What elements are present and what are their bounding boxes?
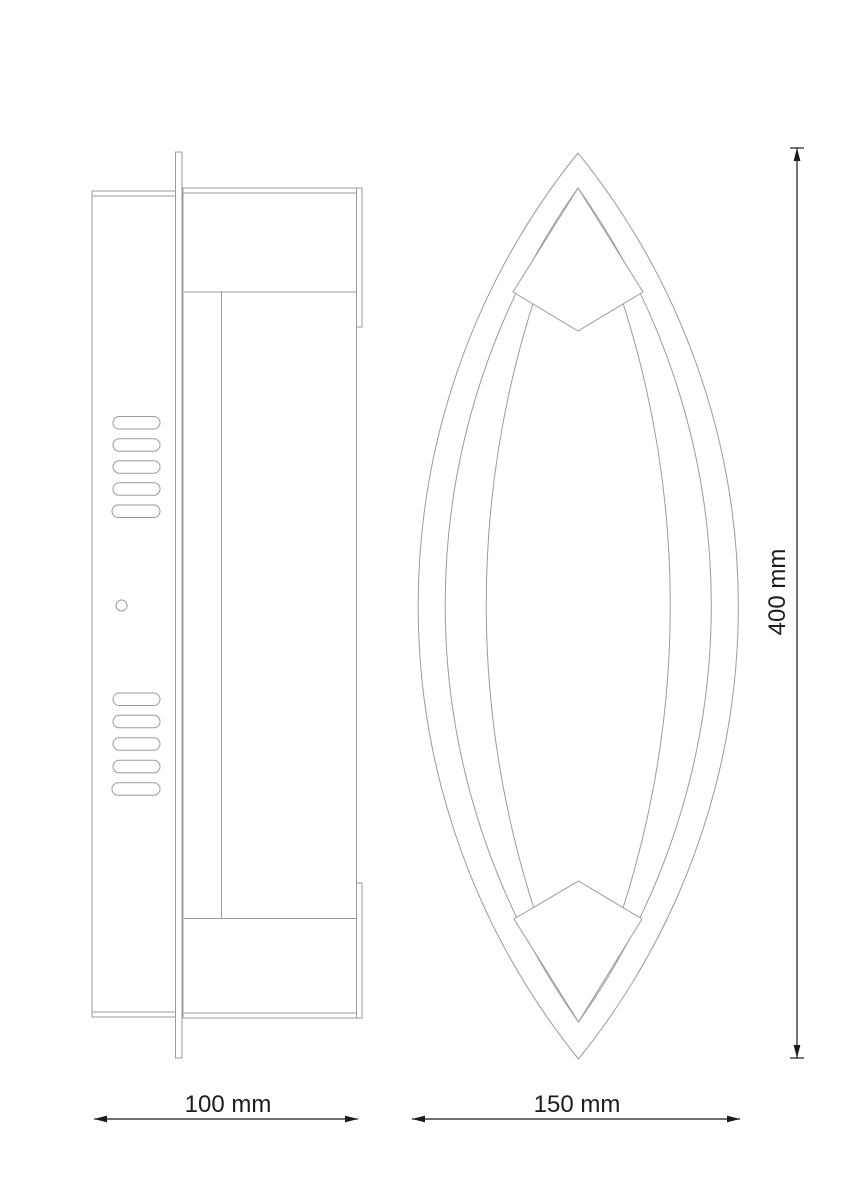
dim-label-height: 400 mm bbox=[764, 549, 791, 636]
shade-profile-body bbox=[183, 188, 357, 1018]
dimension-height: 400 mm bbox=[764, 148, 804, 1058]
front-view bbox=[418, 153, 738, 1059]
arrow-right-icon bbox=[727, 1116, 740, 1123]
arrow-left-icon bbox=[412, 1116, 425, 1123]
arrow-up-icon bbox=[794, 148, 801, 161]
bottom-cap-flange bbox=[357, 883, 363, 1018]
dimension-side-width: 100 mm bbox=[94, 1091, 358, 1122]
arrow-down-icon bbox=[794, 1045, 801, 1058]
arrow-left-icon bbox=[94, 1116, 107, 1123]
dim-label-side-width: 100 mm bbox=[185, 1091, 272, 1118]
top-cap-flange bbox=[357, 188, 363, 327]
dimension-front-width: 150 mm bbox=[412, 1091, 740, 1122]
dim-label-front-width: 150 mm bbox=[534, 1091, 621, 1118]
backplate-box bbox=[92, 191, 176, 1017]
mounting-plate bbox=[176, 152, 183, 1058]
side-view bbox=[92, 152, 362, 1058]
drawing-sheet: 100 mm 150 mm 400 mm bbox=[0, 0, 848, 1200]
technical-drawing: 100 mm 150 mm 400 mm bbox=[0, 0, 848, 1200]
top-cap bbox=[513, 188, 643, 331]
arrow-right-icon bbox=[345, 1116, 358, 1123]
